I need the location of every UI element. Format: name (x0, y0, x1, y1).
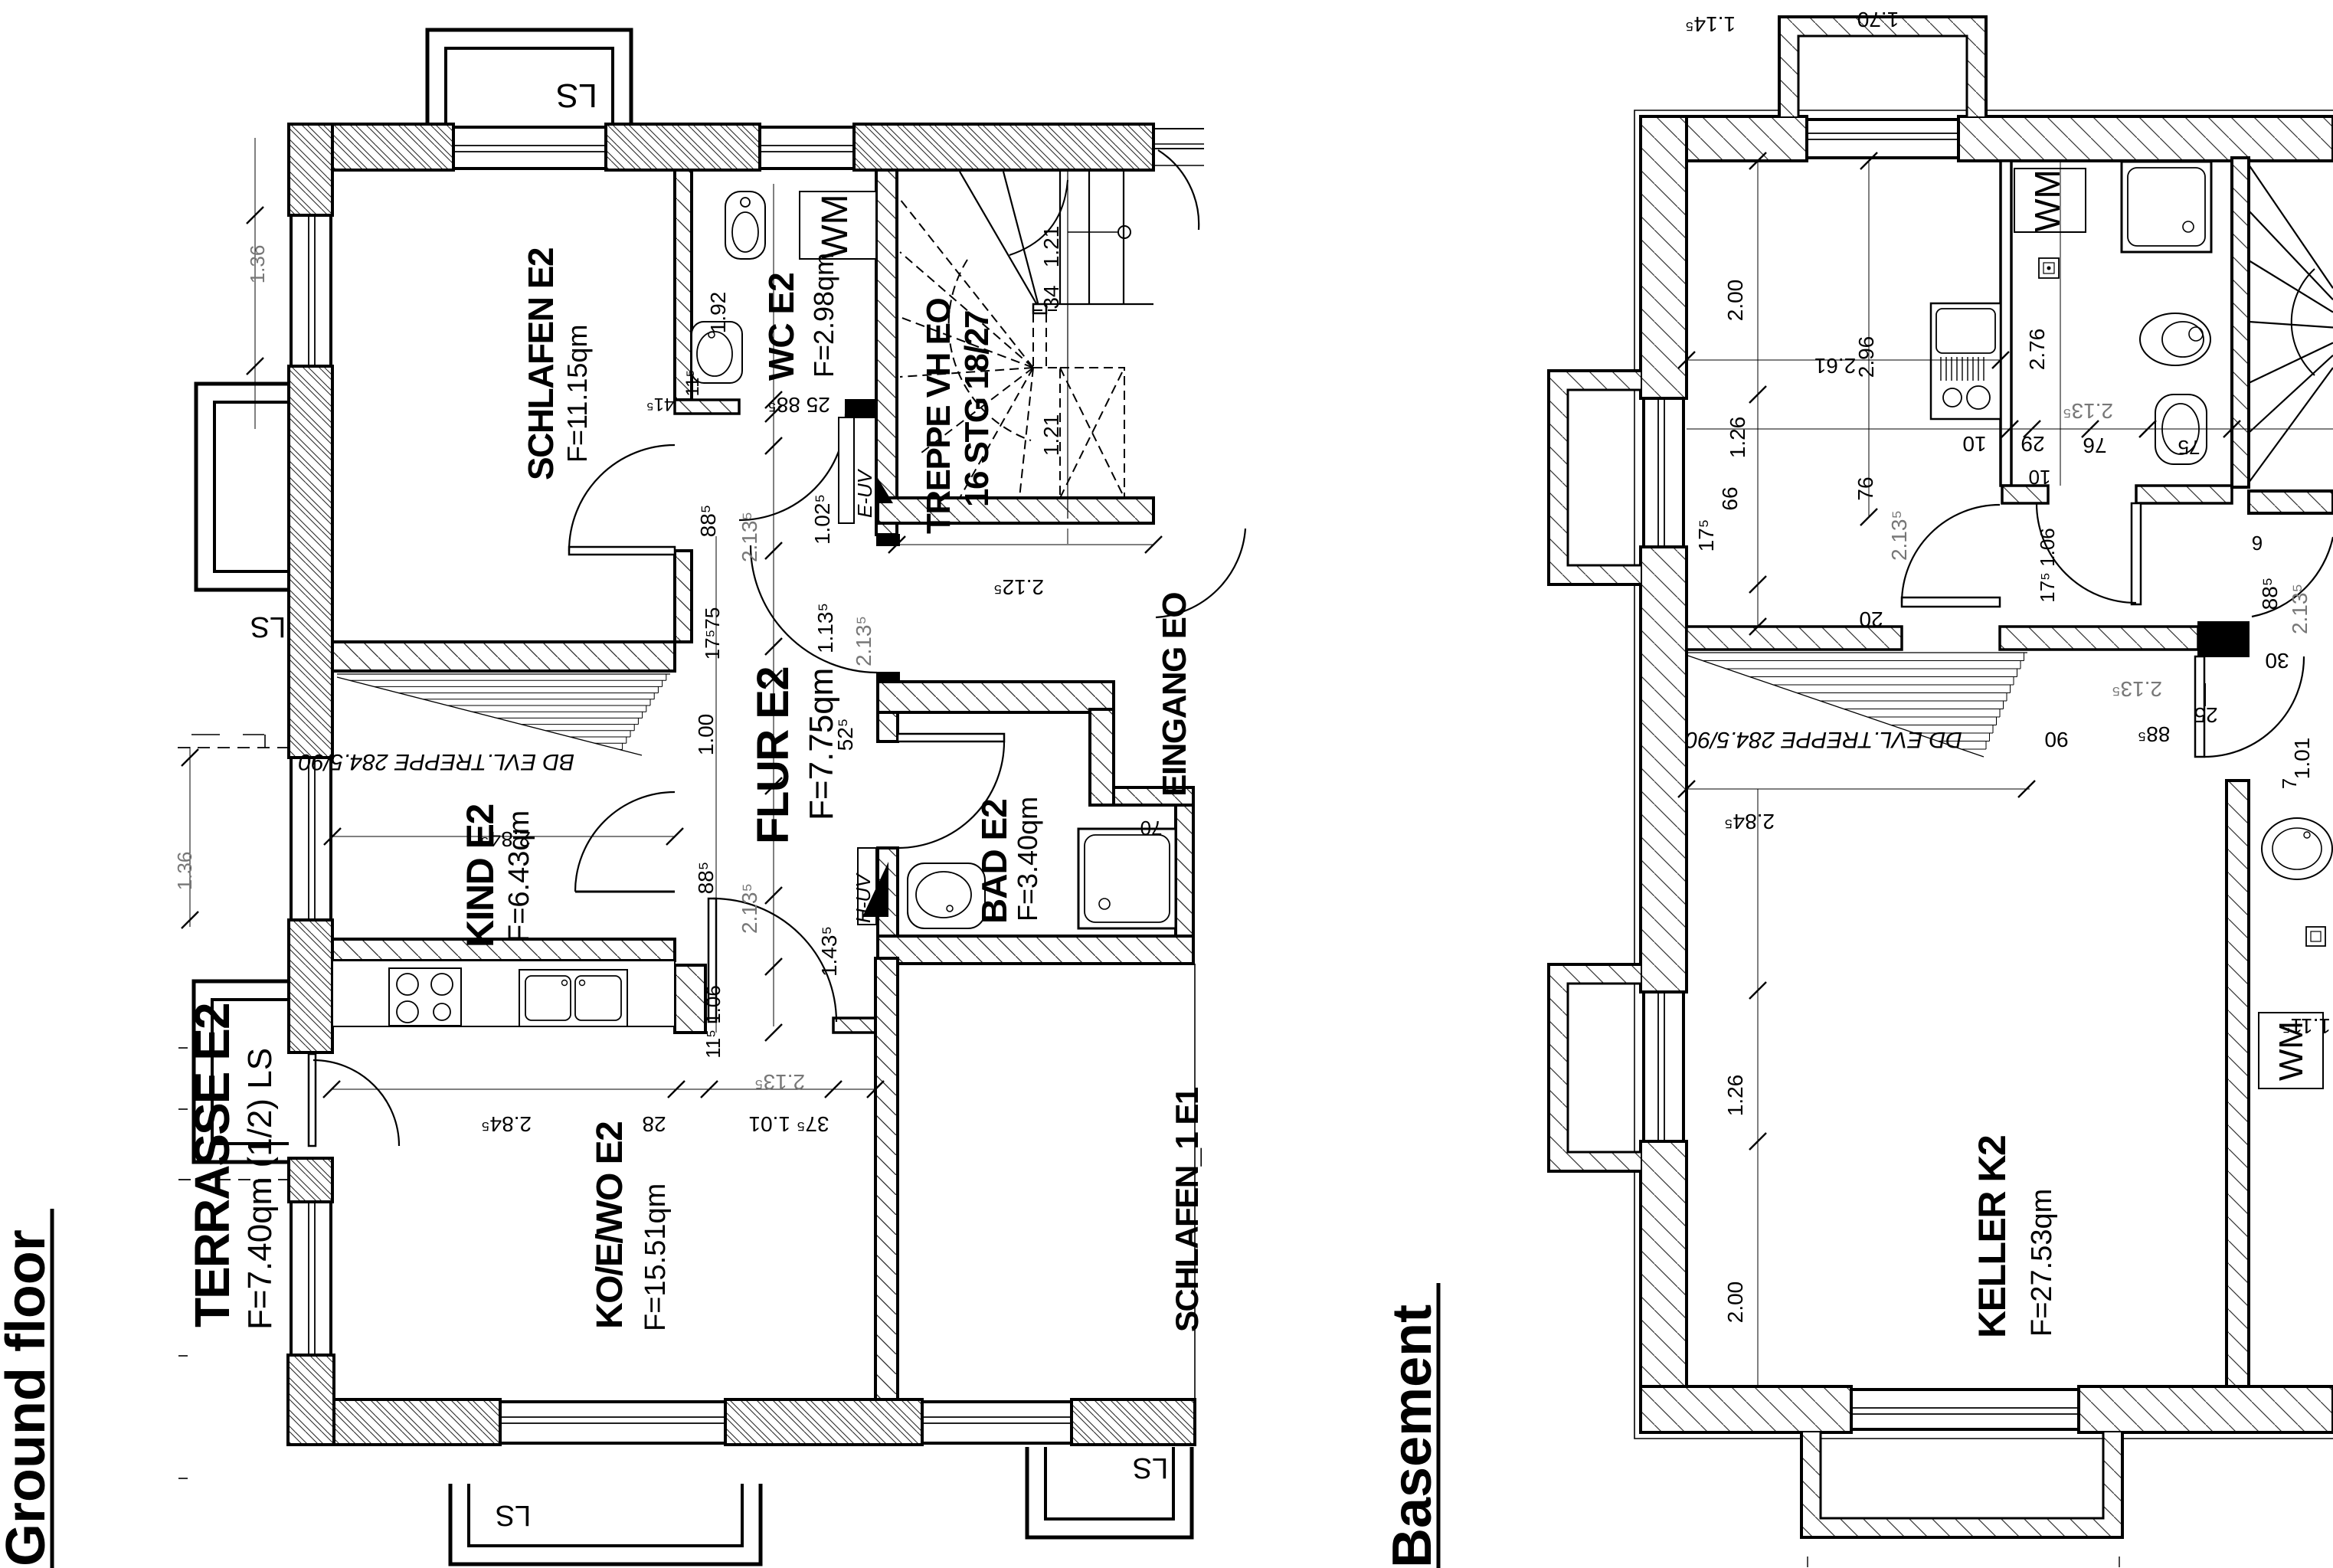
svg-text:17⁵75: 17⁵75 (701, 607, 724, 660)
svg-text:BD EVL.TREPPE 284.5/90: BD EVL.TREPPE 284.5/90 (299, 749, 575, 774)
svg-text:66: 66 (1718, 486, 1742, 510)
svg-text:2.13⁵: 2.13⁵ (2288, 584, 2312, 634)
svg-text:52⁵: 52⁵ (833, 719, 857, 751)
svg-text:2.13⁵: 2.13⁵ (2063, 399, 2113, 423)
svg-text:16 STG 18/27: 16 STG 18/27 (958, 311, 996, 507)
svg-text:SCHLAFEN_1 E1: SCHLAFEN_1 E1 (1169, 1087, 1205, 1332)
svg-text:2.00: 2.00 (1723, 280, 1747, 322)
svg-text:7: 7 (2278, 778, 2301, 789)
svg-text:1.43⁵: 1.43⁵ (817, 926, 841, 977)
svg-text:2.13⁵: 2.13⁵ (1887, 510, 1911, 561)
svg-text:88⁵: 88⁵ (2258, 578, 2282, 611)
svg-text:1.02⁵: 1.02⁵ (810, 494, 834, 545)
svg-text:2.00: 2.00 (1723, 1282, 1747, 1324)
svg-text:1.21: 1.21 (1039, 414, 1063, 457)
svg-text:WC E2: WC E2 (761, 273, 801, 381)
svg-text:1.70: 1.70 (1857, 8, 1899, 31)
svg-text:EINGANG EO: EINGANG EO (1156, 593, 1193, 797)
svg-text:2.13⁵: 2.13⁵ (738, 512, 761, 562)
svg-text:H-UV: H-UV (852, 872, 875, 923)
svg-text:F=15.51qm: F=15.51qm (640, 1183, 672, 1331)
svg-text:F=7.40qm (1/2) LS: F=7.40qm (1/2) LS (241, 1048, 279, 1330)
svg-text:F=2.98qm: F=2.98qm (808, 253, 839, 378)
svg-text:2.76: 2.76 (2025, 329, 2049, 371)
svg-text:76: 76 (1854, 476, 1877, 500)
svg-text:F=27.53qm: F=27.53qm (2026, 1189, 2058, 1337)
svg-text:DD EVL.TREPPE 284.5/90: DD EVL.TREPPE 284.5/90 (1685, 727, 1962, 752)
svg-text:LS: LS (496, 1499, 531, 1531)
svg-text:1.92: 1.92 (706, 292, 730, 334)
svg-text:2.61: 2.61 (1814, 354, 1857, 378)
svg-text:41⁵: 41⁵ (646, 394, 675, 414)
svg-text:70: 70 (1140, 817, 1163, 840)
svg-text:28: 28 (642, 1112, 666, 1136)
svg-text:20: 20 (1859, 607, 1883, 631)
svg-text:1.36: 1.36 (246, 245, 269, 284)
svg-text:10: 10 (1962, 432, 1986, 456)
svg-text:1.00: 1.00 (694, 714, 718, 756)
svg-text:TREPPE VH EO: TREPPE VH EO (920, 299, 957, 534)
svg-text:1.26: 1.26 (1723, 1075, 1747, 1117)
svg-text:34: 34 (1039, 285, 1063, 309)
svg-text:17⁵ 1.06: 17⁵ 1.06 (2036, 528, 2059, 603)
svg-text:SCHLAFEN E2: SCHLAFEN E2 (521, 248, 561, 480)
svg-text:LS: LS (556, 77, 597, 114)
svg-text:TERRASSE E2: TERRASSE E2 (185, 1003, 240, 1327)
svg-text:1.01: 1.01 (2290, 738, 2314, 780)
svg-text:2.13⁵: 2.13⁵ (2112, 677, 2162, 701)
svg-text:2.84⁵: 2.84⁵ (1724, 810, 1775, 833)
svg-text:1.11⁵: 1.11⁵ (2282, 1014, 2331, 1038)
svg-text:1.14⁵: 1.14⁵ (1685, 12, 1736, 36)
svg-text:Ground floor: Ground floor (0, 1229, 57, 1566)
svg-text:Basement: Basement (1382, 1304, 1443, 1568)
svg-text:88⁵: 88⁵ (2138, 722, 2171, 746)
svg-text:2.13⁵: 2.13⁵ (754, 1070, 805, 1094)
svg-text:17⁵: 17⁵ (1694, 519, 1718, 552)
svg-text:KO/E/WO E2: KO/E/WO E2 (590, 1122, 630, 1329)
svg-text:29: 29 (2021, 432, 2044, 456)
svg-text:LS: LS (1133, 1452, 1168, 1484)
svg-text:37⁵ 1.01: 37⁵ 1.01 (748, 1112, 829, 1136)
svg-text:KIND E2: KIND E2 (459, 804, 502, 948)
svg-text:2.96: 2.96 (1854, 336, 1878, 378)
svg-text:10: 10 (2029, 466, 2051, 489)
svg-text:F=3.40qm: F=3.40qm (1012, 797, 1043, 921)
svg-text:LS: LS (250, 611, 286, 643)
svg-text:25 88⁵: 25 88⁵ (767, 393, 830, 417)
svg-text:2.12⁵: 2.12⁵ (993, 575, 1044, 599)
svg-text:75: 75 (2178, 436, 2200, 459)
svg-text:WM: WM (815, 194, 856, 259)
svg-text:1.26: 1.26 (1726, 417, 1749, 459)
svg-text:11⁵: 11⁵ (682, 370, 703, 397)
svg-text:E-UV: E-UV (853, 468, 876, 518)
svg-text:76: 76 (2083, 434, 2106, 457)
svg-text:KELLER K2: KELLER K2 (1971, 1136, 2014, 1338)
svg-text:1.13⁵: 1.13⁵ (813, 603, 837, 653)
svg-text:2.84⁵: 2.84⁵ (480, 827, 531, 851)
svg-text:6: 6 (2252, 532, 2263, 555)
svg-text:2.13⁵: 2.13⁵ (852, 616, 875, 666)
svg-text:25: 25 (2194, 703, 2217, 727)
svg-text:30: 30 (2265, 649, 2289, 673)
svg-text:88⁵: 88⁵ (696, 505, 720, 538)
svg-text:F=11.15qm: F=11.15qm (561, 325, 593, 463)
svg-text:11⁵ 1.06: 11⁵ 1.06 (702, 985, 725, 1059)
svg-text:BAD E2: BAD E2 (974, 799, 1014, 924)
svg-text:88⁵: 88⁵ (694, 862, 718, 895)
svg-text:1.21: 1.21 (1039, 226, 1063, 268)
svg-text:90: 90 (2044, 728, 2068, 751)
svg-text:2.84⁵: 2.84⁵ (481, 1112, 532, 1136)
svg-text:1.36: 1.36 (173, 852, 196, 891)
svg-text:WM: WM (2027, 169, 2067, 232)
svg-text:2.13⁵: 2.13⁵ (738, 883, 761, 934)
